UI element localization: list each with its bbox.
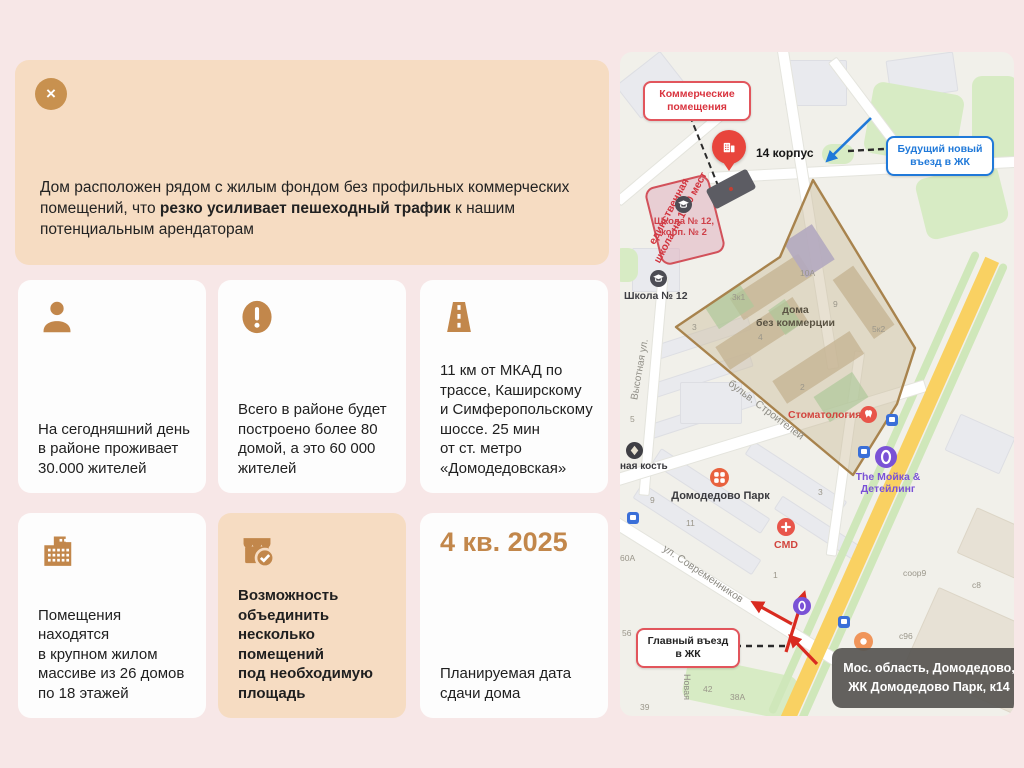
card-date: 4 кв. 2025 Планируемая дата сдачи дома: [420, 513, 608, 718]
bus-stop-icon: [858, 446, 870, 458]
card-text: Помещения находятся в крупном жилом масс…: [38, 606, 196, 704]
building-number: 39: [640, 702, 649, 712]
banner-text-bold: резко усиливает пешеходный трафик: [160, 200, 451, 217]
road-icon: [440, 298, 478, 336]
close-icon: ×: [46, 84, 56, 104]
stomatology-pin-icon: [860, 406, 877, 423]
map-building-block: [944, 414, 1014, 475]
building-number: 9: [833, 299, 838, 309]
building-number: 10А: [800, 268, 815, 278]
bus-stop-icon: [838, 616, 850, 628]
building-number: с96: [899, 631, 913, 641]
card-text: Всего в районе будет построено более 80 …: [238, 400, 396, 478]
school-icon: [675, 196, 692, 213]
school-12-2-label: Школа № 12, корп. № 2: [642, 216, 726, 238]
building-number: 3: [818, 487, 823, 497]
info-banner: × Дом расположен рядом с жилым фондом бе…: [15, 60, 609, 265]
pin-building-icon: [720, 138, 738, 156]
callout-main-entrance: Главный въезд в ЖК: [636, 628, 740, 668]
address-box: Мос. область, Домодедово, ЖК Домодедово …: [832, 648, 1014, 708]
close-button[interactable]: ×: [35, 78, 67, 110]
building-number: 60А: [620, 553, 635, 563]
building-number: 3: [692, 322, 697, 332]
alert-icon: [238, 298, 276, 336]
building-number: 56: [622, 628, 631, 638]
card-text: Планируемая дата сдачи дома: [440, 664, 598, 703]
card-transport: 11 км от МКАД по трассе, Каширскому и Си…: [420, 280, 608, 493]
street-novaya-label: Новая: [682, 666, 692, 708]
building-number: 38А: [730, 692, 745, 702]
card-text: На сегодняшний день в районе проживает 3…: [38, 420, 196, 479]
map-panel: 14 корпус Коммерческие помещения Будущий…: [620, 52, 1014, 716]
cmd-pin-icon: [777, 518, 795, 536]
moyka-icon: [875, 446, 897, 468]
bus-stop-icon: [627, 512, 639, 524]
bus-stop-icon: [886, 414, 898, 426]
card-massiv: Помещения находятся в крупном жилом масс…: [18, 513, 206, 718]
building-icon: [38, 531, 76, 569]
banner-text: Дом расположен рядом с жилым фондом без …: [40, 178, 588, 241]
building-number: 3к1: [732, 292, 745, 302]
building-number: 2: [800, 382, 805, 392]
building-number: соор9: [903, 568, 926, 578]
store-check-icon: [238, 531, 276, 569]
building-number: 42: [703, 684, 712, 694]
card-text: Возможность объединить несколько помещен…: [238, 586, 396, 703]
card-text: 11 км от МКАД по трассе, Каширскому и Си…: [440, 361, 598, 478]
building-number: 11: [686, 518, 695, 528]
map-building-block: [957, 507, 1014, 579]
map-green-area: [822, 144, 854, 164]
stomatology-label: Стоматология: [788, 409, 861, 421]
card-combine-highlighted: Возможность объединить несколько помещен…: [218, 513, 406, 718]
person-icon: [38, 298, 76, 336]
building-number: 5: [630, 414, 635, 424]
cmd-label: CMD: [767, 539, 805, 551]
kost-poi-icon: [626, 442, 643, 459]
commercial-map-pin: [712, 130, 746, 164]
school-12-label: Школа № 12: [624, 290, 688, 302]
callout-commercial: Коммерческие помещения: [643, 81, 751, 121]
building-14-dot: [728, 186, 733, 191]
completion-date: 4 кв. 2025: [440, 527, 568, 558]
kost-label: ная кость: [620, 461, 668, 472]
moyka-label: The Мойка & Детейлинг: [850, 471, 926, 495]
building-number: с8: [972, 580, 981, 590]
building-number: 4: [758, 332, 763, 342]
building-number: 1: [773, 570, 778, 580]
card-residents: На сегодняшний день в районе проживает 3…: [18, 280, 206, 493]
building-number: 9: [650, 495, 655, 505]
building-number: 5к2: [872, 324, 885, 334]
domodedovo-park-label: Домодедово Парк: [668, 490, 773, 502]
domodedovo-park-icon: [710, 468, 729, 487]
callout-future-entrance: Будущий новый въезд в ЖК: [886, 136, 994, 176]
korpus-14-label: 14 корпус: [756, 146, 814, 160]
school-icon: [650, 270, 667, 287]
carwash-icon: [793, 597, 811, 615]
card-construction: Всего в районе будет построено более 80 …: [218, 280, 406, 493]
